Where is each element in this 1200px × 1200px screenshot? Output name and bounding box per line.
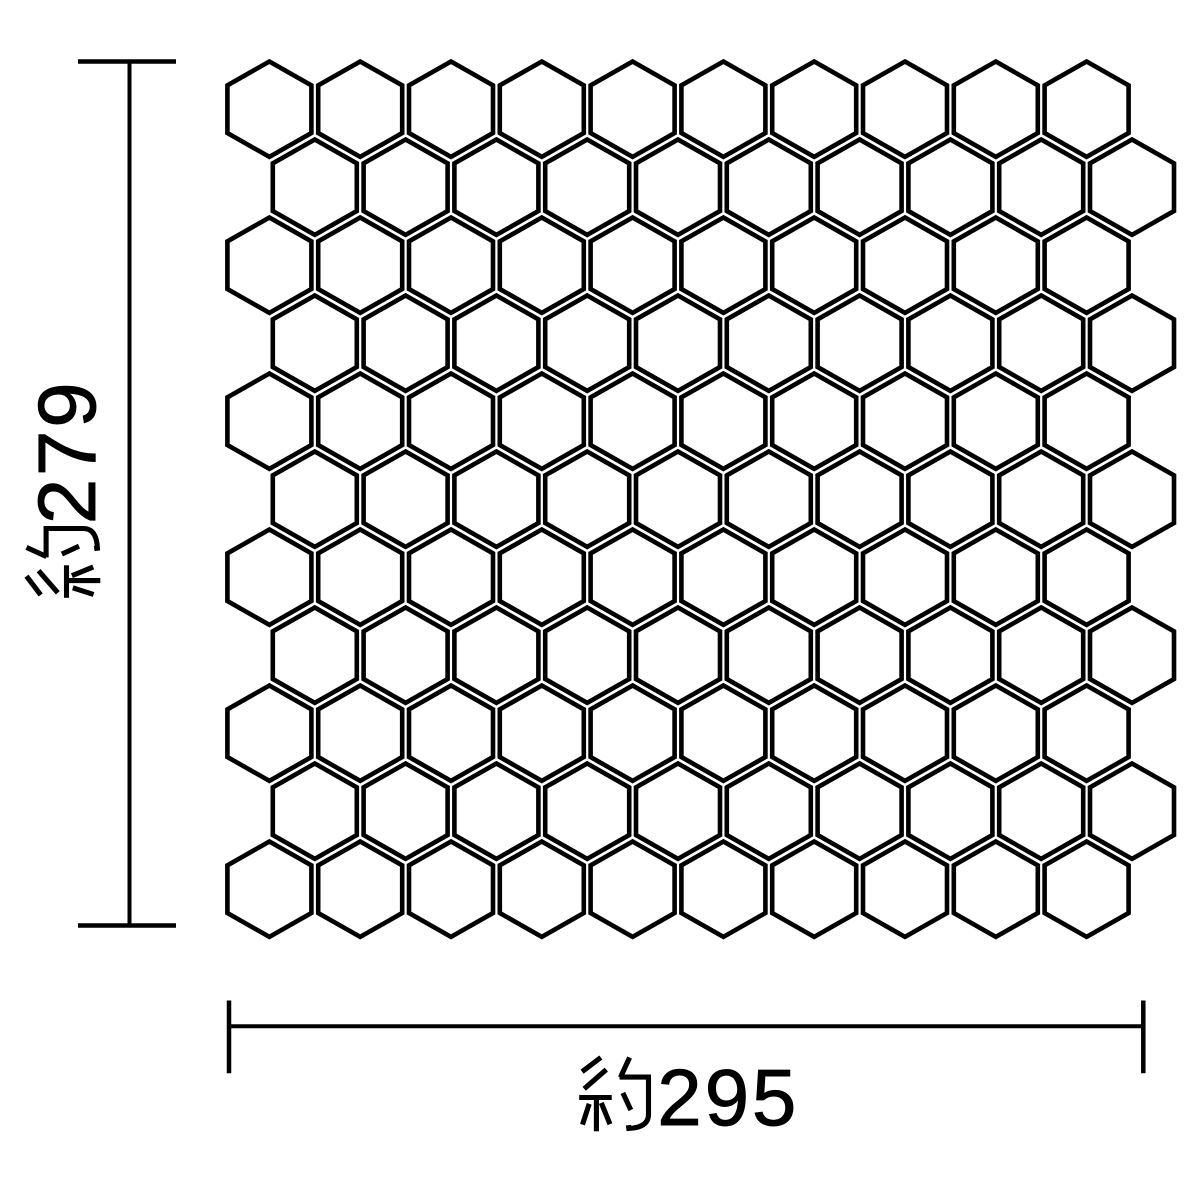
svg-text:279: 279 (22, 380, 113, 525)
svg-text:295: 295 (657, 1053, 799, 1142)
